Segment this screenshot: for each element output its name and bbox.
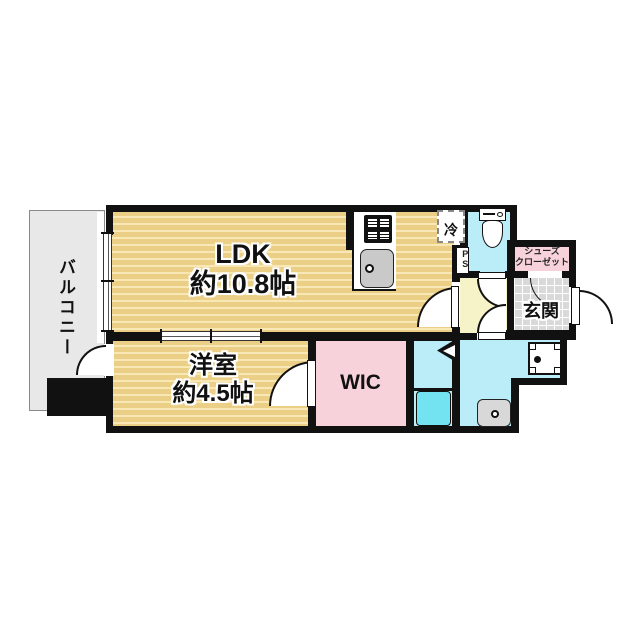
genkan-label: 玄関 [512,297,570,323]
pan-corner [554,367,561,374]
toilet-tank-line [483,213,495,215]
bedroom-name: 洋室 [113,352,313,380]
wall-outer-right-upper [569,240,576,290]
toilet-door-leaf [478,272,506,279]
pipe-space-label: PS [459,249,470,269]
ldk-label: LDK 約10.8帖 [133,239,353,299]
balcony-label: バルコニー [44,228,78,388]
wall-wic-bath [406,332,414,427]
stove-burner [368,219,377,228]
bathtub-icon [416,391,451,426]
washing-machine-pan-icon [528,342,562,375]
window-tick [101,330,114,332]
shoes-closet-label: シューズ クローゼット [515,246,569,269]
ldk-door-leaf [451,286,459,328]
pan-corner [554,343,561,350]
window-ldk-balcony [103,233,112,332]
floorplan-image: 冷 PS バルコニー L [0,0,640,640]
partition-tick [210,329,212,343]
washroom-door-leaf [478,332,506,340]
shoes-closet-label-line2: クローゼット [515,257,569,268]
partition-tick [160,329,162,343]
fridge-space: 冷 [437,210,465,243]
drain-icon [534,356,541,363]
wall-washroom-top [453,333,477,340]
shoes-closet-label-line1: シューズ [515,246,569,257]
pan-corner [529,343,536,350]
vanity-sink-icon [477,399,511,427]
fridge-label: 冷 [439,220,463,240]
window-tick [101,232,114,234]
partition-tick [260,329,262,343]
stove-burner [368,232,377,239]
wall-lower-right [511,378,519,433]
ldk-size: 約10.8帖 [133,269,353,299]
shoes-door-opening [528,271,562,278]
wall-left-upper [106,205,113,235]
entry-door-arc [579,290,613,324]
pipe-space-box: PS [456,247,469,274]
window-tick [101,280,114,282]
stove-burner [380,232,389,239]
toilet-flush-button [497,212,503,217]
pan-corner [529,367,536,374]
faucet-icon [365,264,374,273]
entry-door-leaf [571,287,580,325]
wall-bottom [106,426,519,433]
bedroom-label: 洋室 約4.5帖 [113,352,313,409]
wall-shoes-bottom-right [562,271,576,278]
vanity-drain-icon [491,410,499,418]
bedroom-size: 約4.5帖 [113,380,313,408]
wic-label: WIC [314,371,407,395]
stove-burner [380,219,389,228]
ldk-name: LDK [133,239,353,269]
wall-step-bottom [511,378,567,385]
